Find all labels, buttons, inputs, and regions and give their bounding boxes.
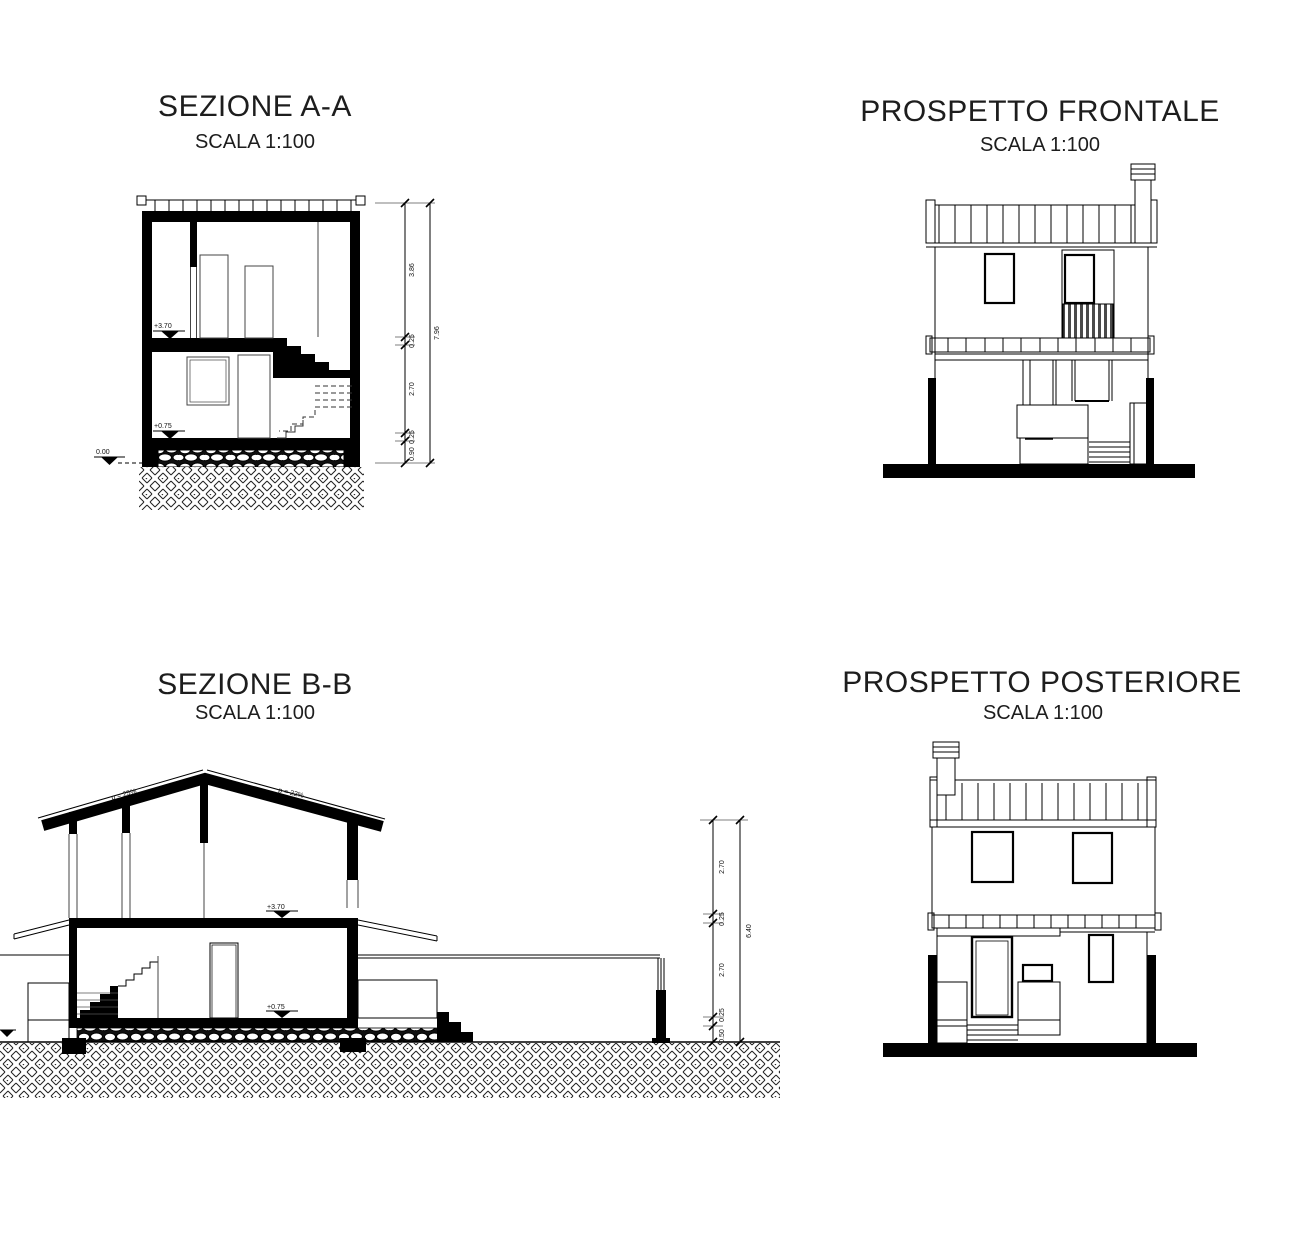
sezione-aa-drawing: +3.70 +0.75 0.00 3.86 0.25 [75, 190, 445, 525]
balcony-band [926, 336, 1154, 354]
title-prospetto-posteriore: PROSPETTO POSTERIORE [842, 666, 1242, 700]
svg-text:2.70: 2.70 [719, 860, 726, 874]
svg-text:3.86: 3.86 [409, 263, 416, 277]
corner-piers [928, 378, 1154, 464]
terrace-railing [930, 777, 1156, 827]
corner-piers [928, 955, 1156, 1043]
svg-text:+3.70: +3.70 [154, 323, 172, 330]
roof-railing [137, 196, 365, 211]
svg-text:7.96: 7.96 [434, 326, 441, 340]
svg-text:+3.70: +3.70 [267, 904, 285, 911]
interior-openings [187, 222, 318, 438]
ground-floor [935, 360, 1148, 464]
svg-text:0.25: 0.25 [409, 334, 416, 348]
roof: p = 25% p = 22% [38, 770, 385, 825]
upper-wall [932, 827, 1155, 915]
level-marker-upper: +3.70 [153, 323, 185, 339]
svg-text:0.25: 0.25 [719, 1008, 726, 1022]
chimney [1131, 164, 1155, 243]
exterior-steps [437, 1012, 473, 1042]
svg-text:2.70: 2.70 [719, 963, 726, 977]
stair [77, 956, 158, 1018]
title-sezione-aa: SEZIONE A-A [158, 90, 352, 124]
floor-slab-upper [69, 918, 358, 928]
svg-text:0.90: 0.90 [409, 447, 416, 461]
interior-door [210, 943, 238, 1018]
svg-text:0.25: 0.25 [409, 430, 416, 444]
svg-text:2.70: 2.70 [409, 382, 416, 396]
svg-text:6.40: 6.40 [746, 924, 753, 938]
balcony-door [1062, 250, 1114, 338]
svg-text:0.00: 0.00 [96, 449, 110, 456]
ground-line [883, 1043, 1197, 1057]
svg-text:0.50: 0.50 [719, 1029, 726, 1043]
prospetto-frontale-drawing [875, 158, 1205, 488]
ground-hatch [139, 467, 364, 510]
prospetto-posteriore-drawing [870, 735, 1210, 1070]
architectural-sheet: SEZIONE A-A SCALA 1:100 PROSPETTO FRONTA… [0, 0, 1290, 1243]
cut-walls [142, 211, 360, 480]
ground-line [883, 464, 1195, 478]
svg-text:+0.75: +0.75 [267, 1004, 285, 1011]
svg-text:+0.75: +0.75 [154, 423, 172, 430]
floor-slab-ground [69, 1018, 358, 1028]
svg-text:0.25: 0.25 [719, 912, 726, 926]
title-prospetto-frontale: PROSPETTO FRONTALE [860, 95, 1220, 129]
scale-sezione-bb: SCALA 1:100 [195, 702, 315, 725]
title-sezione-bb: SEZIONE B-B [157, 668, 353, 702]
dimension-chain [375, 199, 435, 467]
rubble-layer [77, 1028, 457, 1042]
sezione-bb-drawing: p = 25% p = 22% [0, 760, 790, 1105]
balcony-band [928, 913, 1161, 936]
stair-hidden [277, 386, 352, 438]
level-marker-ground-floor: +0.75 [266, 1004, 298, 1018]
terrace-railing [926, 200, 1157, 243]
scale-prospetto-frontale: SCALA 1:100 [980, 134, 1100, 157]
ground-floor [935, 932, 1147, 1043]
left-porch [0, 955, 69, 1042]
right-pergola [358, 955, 664, 1018]
stair-cut [273, 338, 350, 378]
chimney [933, 742, 959, 795]
level-marker-zero: 0.00 [94, 449, 142, 465]
ground-hatch [0, 1043, 780, 1098]
rubble-layer [158, 450, 344, 467]
upper-window [985, 254, 1014, 303]
level-marker-zero-left [0, 1030, 16, 1037]
dimension-labels: 2.70 0.25 2.70 0.25 0.50 6.40 [719, 860, 753, 1043]
scale-sezione-aa: SCALA 1:100 [195, 131, 315, 154]
level-marker-ground-floor: +0.75 [153, 423, 185, 439]
dimension-labels: 3.86 0.25 2.70 0.25 0.90 7.96 [409, 263, 441, 461]
scale-prospetto-posteriore: SCALA 1:100 [983, 702, 1103, 725]
level-marker-upper: +3.70 [266, 904, 298, 918]
